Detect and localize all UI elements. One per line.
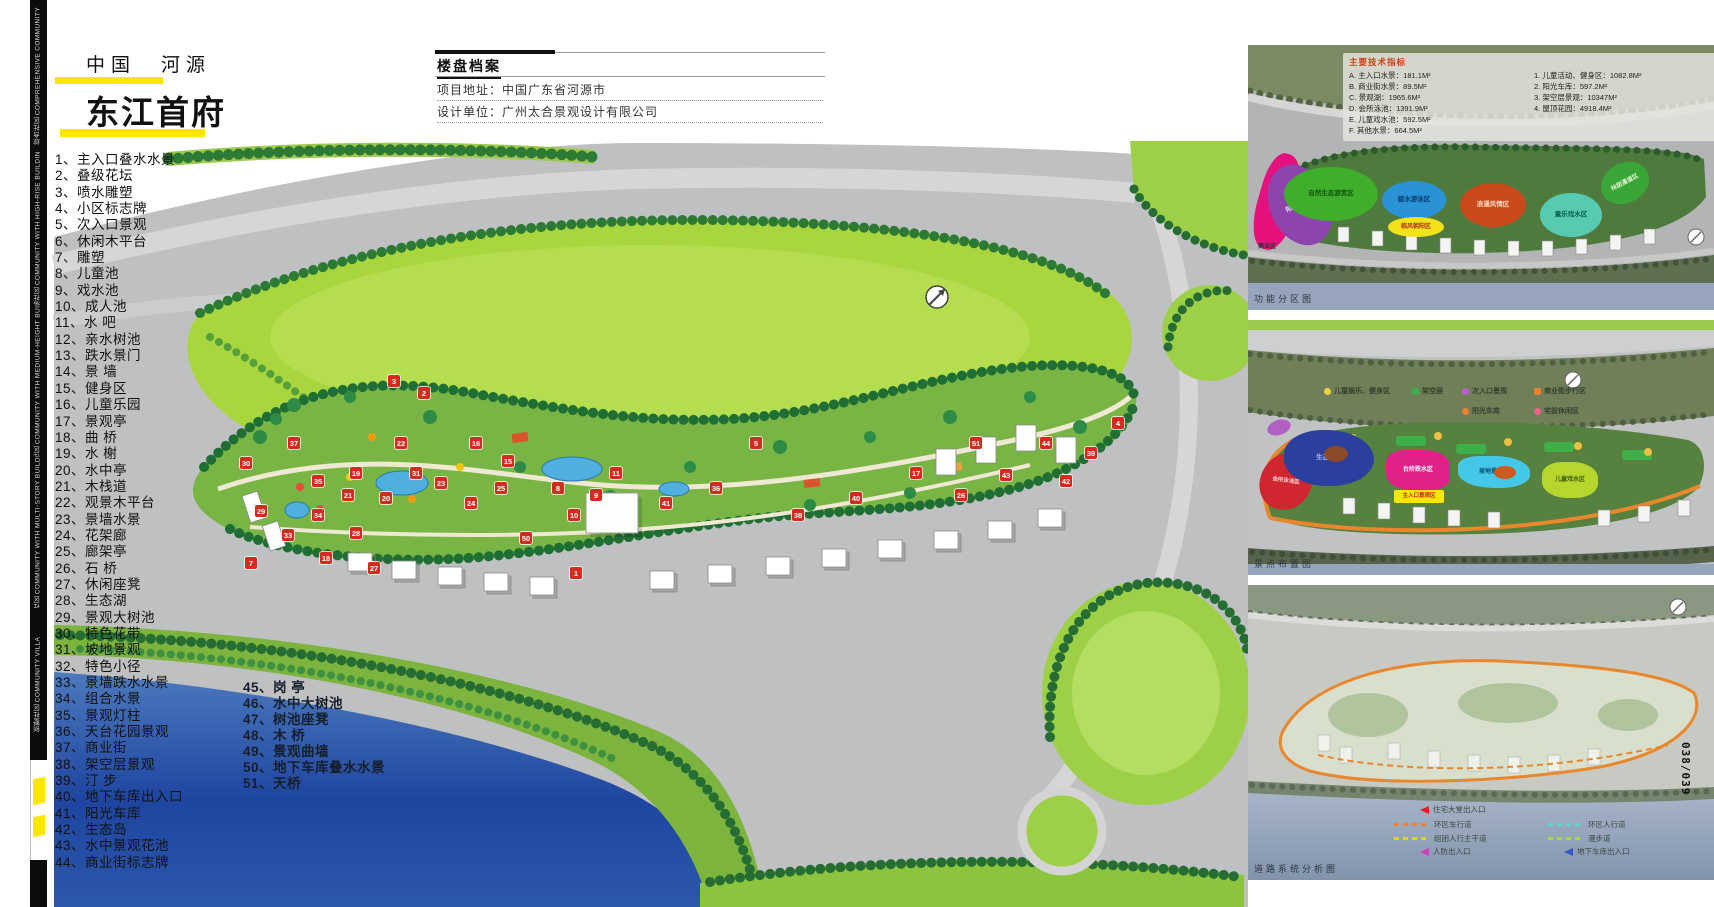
function-zone: 碧水游泳区 bbox=[1382, 181, 1446, 219]
function-zone: 自然生态游赏区 bbox=[1284, 167, 1378, 221]
road-legend-arrow-item: 人防出入口 bbox=[1416, 846, 1471, 857]
legend-label: 架空层 bbox=[1422, 386, 1443, 396]
legend-item: 37、商业街 bbox=[55, 740, 255, 756]
scenic-zone bbox=[1324, 446, 1348, 462]
tech-item: C. 景观湖：1965.6M² bbox=[1349, 92, 1526, 103]
zone-label bbox=[1277, 427, 1281, 428]
tech-item: D. 会所泳池：1391.9M² bbox=[1349, 103, 1526, 114]
edge-strip-black: 综合社区 COMPREHENSIVE COMMUNITY高层社区 COMMUNI… bbox=[30, 0, 47, 760]
minimap-functional-zoning: .d{fill:none;stroke-linecap:round;stroke… bbox=[1248, 45, 1714, 310]
divider-accent bbox=[435, 50, 555, 54]
plan-number-marker: 35 bbox=[312, 475, 324, 487]
plan-number-marker: 28 bbox=[350, 527, 362, 539]
zone-label: 碧水游泳区 bbox=[1396, 196, 1433, 203]
plan-number-marker: 43 bbox=[1000, 469, 1012, 481]
legend-item: 41、阳光车库 bbox=[55, 806, 255, 822]
zone-label: 童乐戏水区 bbox=[1553, 211, 1590, 218]
minimap-road-system: .d{fill:none;stroke-linecap:round;stroke… bbox=[1248, 585, 1714, 880]
compass-icon bbox=[1670, 599, 1686, 615]
legend-item: 18、曲 桥 bbox=[55, 430, 255, 446]
legend-item: 43、水中景观花池 bbox=[55, 838, 255, 854]
legend-item: 34、组合水景 bbox=[55, 691, 255, 707]
zone-label: 浪漫风情区 bbox=[1475, 201, 1512, 208]
legend-item: 31、坡地景观 bbox=[55, 642, 255, 658]
plan-number-marker: 21 bbox=[342, 489, 354, 501]
legend-label: 地下车库出入口 bbox=[1577, 846, 1630, 857]
legend-label: 环区车行道 bbox=[1434, 819, 1472, 830]
legend-item: 26、石 桥 bbox=[55, 561, 255, 577]
legend-item: 35、景观灯柱 bbox=[55, 708, 255, 724]
compass-icon bbox=[926, 286, 948, 308]
plan-number-marker: 9 bbox=[590, 489, 602, 501]
plan-number-marker: 31 bbox=[410, 467, 422, 479]
plan-number-marker: 25 bbox=[495, 482, 507, 494]
legend-dot-icon bbox=[1462, 388, 1469, 395]
plan-number-marker: 41 bbox=[660, 497, 672, 509]
dashed-line-icon bbox=[1394, 823, 1430, 826]
legend-item: 8、儿童池 bbox=[55, 266, 255, 282]
plan-number-marker: 29 bbox=[255, 505, 267, 517]
tech-indicators: 主要技术指标 A. 主入口水景：181.1M²B. 商业街水景：89.5M²C.… bbox=[1343, 53, 1714, 141]
plan-number-marker: 51 bbox=[970, 437, 982, 449]
tech-item: E. 儿童戏水池：592.5M² bbox=[1349, 114, 1526, 125]
project-underline bbox=[60, 129, 205, 137]
legend-item: 12、亲水树池 bbox=[55, 332, 255, 348]
zone-label: 主入口景观区 bbox=[1400, 493, 1437, 499]
legend-dot-item: 宅前休闲区 bbox=[1534, 406, 1579, 416]
legend-item: 51、天桥 bbox=[243, 776, 473, 792]
legend-dot-item: 阳光车库 bbox=[1462, 406, 1500, 416]
legend-item: 44、商业街标志牌 bbox=[55, 855, 255, 871]
legend-item: 39、汀 步 bbox=[55, 773, 255, 789]
dashed-line-icon bbox=[1548, 837, 1584, 840]
zone-label: 儿童戏水区 bbox=[1553, 477, 1587, 484]
legend-item: 19、水 榭 bbox=[55, 446, 255, 462]
legend-item: 27、休闲座凳 bbox=[55, 577, 255, 593]
plan-number-marker: 15 bbox=[502, 455, 514, 467]
plan-number-marker: 3 bbox=[388, 375, 400, 387]
legend-item: 10、成人池 bbox=[55, 299, 255, 315]
arrow-icon bbox=[1560, 848, 1573, 856]
legend-item: 29、景观大树池 bbox=[55, 610, 255, 626]
legend-item: 11、水 吧 bbox=[55, 315, 255, 331]
minimap2-caption: 景点布置图 bbox=[1254, 557, 1314, 570]
legend-item: 46、水中大树池 bbox=[243, 696, 473, 712]
zone-label: 商业区 bbox=[1256, 244, 1278, 251]
plan-number-marker: 1 bbox=[570, 567, 582, 579]
tech-item: B. 商业街水景：89.5M² bbox=[1349, 81, 1526, 92]
divider bbox=[435, 76, 825, 77]
edge-strip-highlight bbox=[33, 777, 45, 806]
legend-label: 环区人行道 bbox=[1588, 819, 1626, 830]
legend-item: 33、景墙跌水水景 bbox=[55, 675, 255, 691]
plan-number-marker: 33 bbox=[282, 529, 294, 541]
scenic-zone bbox=[1494, 466, 1516, 479]
scenic-zone: 台阶跌水区 bbox=[1386, 450, 1450, 490]
legend-item: 6、休闲木平台 bbox=[55, 234, 255, 250]
minimap1-caption: 功能分区图 bbox=[1254, 292, 1314, 305]
legend-item: 5、次入口景观 bbox=[55, 217, 255, 233]
road-legend-dash-item: 组团人行主干道 bbox=[1394, 833, 1487, 844]
tech-item: 3. 架空层景观：10347M² bbox=[1534, 92, 1711, 103]
minimap-scenic-layout: .d{fill:none;stroke-linecap:round;stroke… bbox=[1248, 320, 1714, 575]
legend-label: 次入口景观 bbox=[1472, 386, 1507, 396]
legend-item: 32、特色小径 bbox=[55, 659, 255, 675]
plan-number-marker: 23 bbox=[435, 477, 447, 489]
minimap3-caption: 道路系统分析图 bbox=[1254, 862, 1338, 875]
tech-item: A. 主入口水景：181.1M² bbox=[1349, 70, 1526, 81]
legend-item: 25、廊架亭 bbox=[55, 544, 255, 560]
edge-strip-segment: 别墅社区 COMMUNITY VILLA bbox=[30, 608, 47, 760]
tech-item: 4. 屋顶花园：4918.4M² bbox=[1534, 103, 1711, 114]
legend-label: 儿童娱乐、健身区 bbox=[1334, 386, 1390, 396]
legend-item: 4、小区标志牌 bbox=[55, 201, 255, 217]
plan-number-marker: 40 bbox=[850, 492, 862, 504]
legend-item: 22、观景木平台 bbox=[55, 495, 255, 511]
plan-number-marker: 20 bbox=[380, 492, 392, 504]
road-legend-arrow-item: 住宅大堂出入口 bbox=[1416, 804, 1486, 815]
legend-item: 30、特色花带 bbox=[55, 626, 255, 642]
edge-strip-segment: 多层社区 COMMUNITY WITH MULTI-STORY BUILDING… bbox=[30, 456, 47, 608]
page-number: 038/039 bbox=[1679, 742, 1692, 795]
legend-dot-icon bbox=[1534, 408, 1541, 415]
edge-strip-highlight-area bbox=[30, 760, 48, 860]
edge-strip-highlight bbox=[33, 815, 45, 838]
legend-label: 宅前休闲区 bbox=[1544, 406, 1579, 416]
legend-item: 21、木栈道 bbox=[55, 479, 255, 495]
legend-list-2: 45、岗 亭46、水中大树池47、树池座凳48、木 桥49、景观曲墙50、地下车… bbox=[243, 680, 473, 792]
compass-icon bbox=[1688, 229, 1704, 245]
property-address-value: 中国广东省河源市 bbox=[502, 83, 606, 97]
legend-item: 15、健身区 bbox=[55, 381, 255, 397]
legend-item: 50、地下车库叠水水景 bbox=[243, 760, 473, 776]
legend-square-item: 商业街步行区 bbox=[1534, 386, 1586, 396]
plan-number-marker: 18 bbox=[320, 552, 332, 564]
tech-item: 2. 阳光车库：597.2M² bbox=[1534, 81, 1711, 92]
zone-label: 林荫漫道区 bbox=[1608, 172, 1641, 194]
zone-label: 台阶跌水区 bbox=[1401, 467, 1435, 474]
arrow-icon bbox=[1416, 848, 1429, 856]
scenic-zone: 主入口景观区 bbox=[1394, 490, 1444, 503]
legend-item: 20、水中亭 bbox=[55, 463, 255, 479]
plan-number-marker: 8 bbox=[552, 482, 564, 494]
legend-dot-icon bbox=[1462, 408, 1469, 415]
legend-item: 49、景观曲墙 bbox=[243, 744, 473, 760]
plan-number-marker: 11 bbox=[610, 467, 622, 479]
project-title: 东江首府 bbox=[86, 86, 226, 134]
legend-item: 23、景墙水景 bbox=[55, 512, 255, 528]
legend-label: 漫步道 bbox=[1588, 833, 1611, 844]
plan-number-marker: 22 bbox=[395, 437, 407, 449]
legend-label: 阳光车库 bbox=[1472, 406, 1500, 416]
plan-number-marker: 50 bbox=[520, 532, 532, 544]
plan-number-marker: 27 bbox=[368, 562, 380, 574]
legend-item: 9、戏水池 bbox=[55, 283, 255, 299]
property-address-row: 项目地址：中国广东省河源市 bbox=[437, 81, 823, 101]
property-address-label: 项目地址： bbox=[437, 83, 502, 97]
road-legend-arrow-item: 地下车库出入口 bbox=[1560, 846, 1630, 857]
plan-number-marker: 10 bbox=[568, 509, 580, 521]
plan-number-marker: 5 bbox=[750, 437, 762, 449]
legend-item: 28、生态湖 bbox=[55, 593, 255, 609]
plan-number-marker: 16 bbox=[470, 437, 482, 449]
zone-label: 自然生态游赏区 bbox=[1306, 190, 1356, 197]
road-legend-dash-item: 环区车行道 bbox=[1394, 819, 1472, 830]
legend-dot-item: 次入口景观 bbox=[1462, 386, 1507, 396]
plan-number-marker: 19 bbox=[350, 467, 362, 479]
legend-item: 2、叠级花坛 bbox=[55, 168, 255, 184]
dashed-line-icon bbox=[1548, 823, 1584, 826]
edge-strip-footer bbox=[30, 860, 47, 907]
plan-number-marker: 34 bbox=[312, 509, 324, 521]
edge-strip-segment: 小高层社区 COMMUNITY WITH MEDIUM-HEIGHT BUILD… bbox=[30, 304, 47, 456]
legend-item: 24、花架廊 bbox=[55, 528, 255, 544]
legend-item: 14、景 墙 bbox=[55, 364, 255, 380]
legend-item: 45、岗 亭 bbox=[243, 680, 473, 696]
edge-strip: 综合社区 COMPREHENSIVE COMMUNITY高层社区 COMMUNI… bbox=[30, 0, 47, 907]
legend-item: 13、跌水景门 bbox=[55, 348, 255, 364]
legend-list-1: 1、主入口叠水水景2、叠级花坛3、喷水雕塑4、小区标志牌5、次入口景观6、休闲木… bbox=[55, 152, 255, 871]
legend-dot-item: 儿童娱乐、健身区 bbox=[1324, 386, 1390, 396]
legend-label: 组团人行主干道 bbox=[1434, 833, 1487, 844]
arrow-icon bbox=[1416, 806, 1429, 814]
plan-number-marker: 26 bbox=[955, 489, 967, 501]
legend-label: 商业街步行区 bbox=[1544, 386, 1586, 396]
function-zone: 临风朝阳区 bbox=[1388, 217, 1444, 237]
location-underline bbox=[55, 77, 163, 84]
dashed-line-icon bbox=[1394, 837, 1430, 840]
legend-item: 1、主入口叠水水景 bbox=[55, 152, 255, 168]
legend-square-icon bbox=[1534, 388, 1541, 395]
legend-label: 住宅大堂出入口 bbox=[1433, 804, 1486, 815]
plan-number-marker: 44 bbox=[1040, 437, 1052, 449]
legend-item: 16、儿童乐园 bbox=[55, 397, 255, 413]
legend-item: 48、木 桥 bbox=[243, 728, 473, 744]
legend-item: 7、雕塑 bbox=[55, 250, 255, 266]
plan-number-marker: 42 bbox=[1060, 475, 1072, 487]
location-title: 中国 河源 bbox=[86, 50, 211, 77]
plan-number-marker: 2 bbox=[418, 387, 430, 399]
function-zone: 浪漫风情区 bbox=[1460, 183, 1526, 227]
legend-square-icon bbox=[1412, 388, 1419, 395]
function-zone: 商业区 bbox=[1250, 241, 1284, 253]
design-unit-row: 设计单位：广州太合景观设计有限公司 bbox=[437, 103, 823, 123]
tech-item: F. 其他水景：664.5M² bbox=[1349, 125, 1526, 136]
legend-item: 42、生态岛 bbox=[55, 822, 255, 838]
plan-number-marker: 24 bbox=[465, 497, 477, 509]
tech-col-b: 1. 儿童活动、健身区：1082.8M²2. 阳光车库：597.2M²3. 架空… bbox=[1534, 70, 1711, 136]
legend-square-item: 架空层 bbox=[1412, 386, 1443, 396]
plan-number-marker: 4 bbox=[1112, 417, 1124, 429]
legend-item: 17、景观亭 bbox=[55, 414, 255, 430]
legend-item: 40、地下车库出入口 bbox=[55, 789, 255, 805]
road-legend-dash-item: 漫步道 bbox=[1548, 833, 1611, 844]
plan-number-marker: 37 bbox=[288, 437, 300, 449]
plan-number-marker: 38 bbox=[792, 509, 804, 521]
design-unit-value: 广州太合景观设计有限公司 bbox=[502, 105, 658, 119]
tech-col-a: A. 主入口水景：181.1M²B. 商业街水景：89.5M²C. 景观湖：19… bbox=[1349, 70, 1526, 136]
legend-item: 36、天台花园景观 bbox=[55, 724, 255, 740]
plan-number-marker: 17 bbox=[910, 467, 922, 479]
zone-label: 临风朝阳区 bbox=[1399, 224, 1433, 231]
design-unit-label: 设计单位： bbox=[437, 105, 502, 119]
plan-number-marker: 36 bbox=[710, 482, 722, 494]
legend-dot-icon bbox=[1324, 388, 1331, 395]
tech-item: 1. 儿童活动、健身区：1082.8M² bbox=[1534, 70, 1711, 81]
edge-strip-segment: 综合社区 COMPREHENSIVE COMMUNITY bbox=[30, 0, 47, 152]
legend-item: 3、喷水雕塑 bbox=[55, 185, 255, 201]
legend-item: 47、树池座凳 bbox=[243, 712, 473, 728]
plan-number-marker: 39 bbox=[1085, 447, 1097, 459]
legend-label: 人防出入口 bbox=[1433, 846, 1471, 857]
edge-strip-segment: 高层社区 COMMUNITY WITH HIGH-RISE BUILDINGS bbox=[30, 152, 47, 304]
scenic-zone: 儿童戏水区 bbox=[1542, 462, 1598, 498]
road-legend-dash-item: 环区人行道 bbox=[1548, 819, 1626, 830]
legend-item: 38、架空层景观 bbox=[55, 757, 255, 773]
tech-indicators-title: 主要技术指标 bbox=[1349, 57, 1711, 68]
function-zone: 童乐戏水区 bbox=[1540, 193, 1602, 237]
